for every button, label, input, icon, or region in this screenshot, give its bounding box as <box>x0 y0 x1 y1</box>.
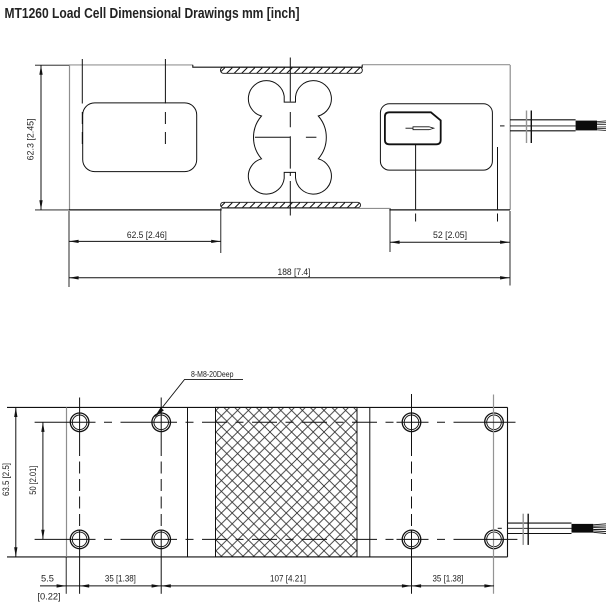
svg-text:107 [4.21]: 107 [4.21] <box>270 573 306 583</box>
svg-text:[0.22]: [0.22] <box>37 592 60 602</box>
svg-text:62.3 [2.45]: 62.3 [2.45] <box>25 118 35 160</box>
svg-text:35 [1.38]: 35 [1.38] <box>105 573 136 583</box>
svg-text:63.5 [2.5]: 63.5 [2.5] <box>1 463 11 496</box>
svg-text:8-M8-20Deep: 8-M8-20Deep <box>191 370 234 379</box>
svg-text:62.5 [2.46]: 62.5 [2.46] <box>127 230 167 240</box>
svg-text:MT1260 Load Cell Dimensional D: MT1260 Load Cell Dimensional Drawings mm… <box>5 6 300 22</box>
svg-text:50 [2.01]: 50 [2.01] <box>28 466 38 495</box>
svg-text:35 [1.38]: 35 [1.38] <box>433 574 464 584</box>
svg-text:188 [7.4]: 188 [7.4] <box>278 267 311 277</box>
svg-text:5.5: 5.5 <box>41 573 54 583</box>
svg-text:52 [2.05]: 52 [2.05] <box>433 230 467 240</box>
